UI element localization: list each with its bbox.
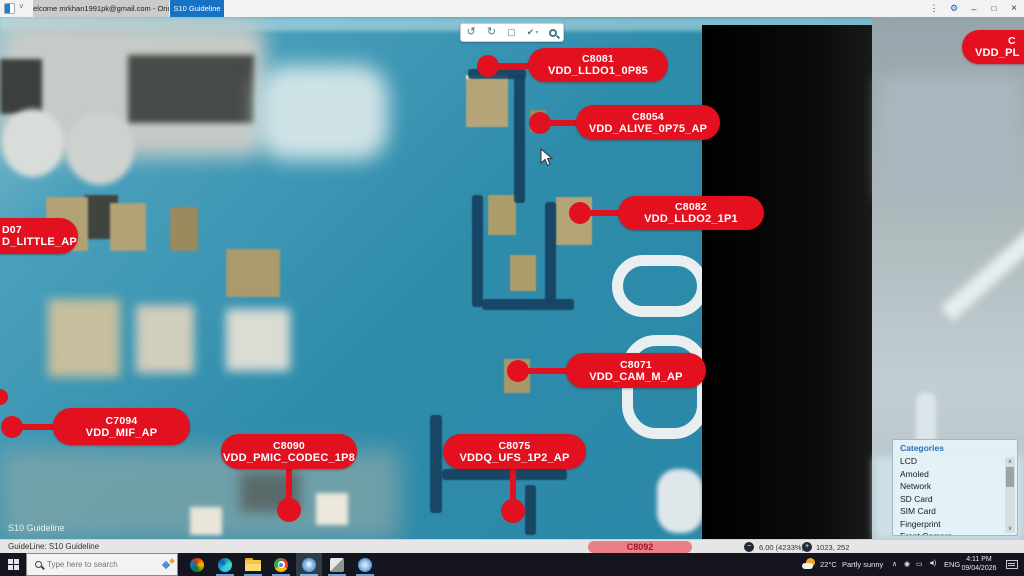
- callout-dot[interactable]: [501, 499, 525, 523]
- tray-circle-icon[interactable]: ◉: [904, 560, 910, 568]
- callout-rail: D_LITTLE_AP: [0, 236, 77, 248]
- callout-id: C7094: [53, 415, 190, 427]
- canvas-toolbar: ↺ ↻ ▢ ✔▾: [460, 23, 564, 42]
- categories-panel: Categories LCD Amoled Network SD Card SI…: [892, 439, 1018, 536]
- minimize-button[interactable]: –: [966, 0, 982, 17]
- taskbar-app-copilot[interactable]: [184, 553, 210, 576]
- tab-list-caret-icon[interactable]: ˅: [19, 2, 24, 11]
- taskbar: ✳ 22°C Partly sunny ∧ ◉ ▭ ◄) ENG 4:11 PM: [0, 553, 1024, 576]
- callout-rail: VDD_PMIC_CODEC_1P8: [221, 452, 357, 464]
- scroll-up-icon[interactable]: ∧: [1005, 457, 1015, 466]
- pcb-trace: [442, 469, 567, 480]
- taskbar-app-edge[interactable]: [212, 553, 238, 576]
- component-callout-c8082[interactable]: C8082 VDD_LLDO2_1P1: [618, 196, 764, 230]
- search-icon: [35, 561, 42, 568]
- draw-tool-caret-icon: ▾: [535, 30, 538, 36]
- scrollbar-thumb[interactable]: [1006, 467, 1014, 487]
- pcb-pad: [226, 309, 290, 371]
- pcb-trace: [525, 485, 536, 535]
- speaker-icon[interactable]: ◄): [928, 560, 935, 567]
- pcb-capacitor: [2, 109, 64, 177]
- pcb-canvas[interactable]: ↺ ↻ ▢ ✔▾ C8081 VDD_LLDO1_0P85 C8054 VDD_…: [0, 17, 1024, 539]
- category-item-front-camera[interactable]: Front Camera: [893, 530, 1017, 536]
- category-item-fingerprint[interactable]: Fingerprint: [893, 518, 1017, 531]
- pcb-trace: [430, 415, 442, 513]
- callout-id: C8082: [618, 201, 764, 213]
- tray-chevron-up-icon[interactable]: ∧: [892, 560, 897, 568]
- callout-dot[interactable]: [529, 112, 551, 134]
- folder-icon: [245, 558, 261, 571]
- component-callout-partial-left[interactable]: D07 D_LITTLE_AP: [0, 218, 78, 254]
- callout-dot-partial: [0, 389, 8, 405]
- component-callout-c7094[interactable]: C7094 VDD_MIF_AP: [53, 408, 190, 445]
- weather-temp[interactable]: 22°C: [820, 560, 837, 569]
- taskbar-app-chrome[interactable]: [268, 553, 294, 576]
- fit-screen-icon[interactable]: ▢: [507, 28, 516, 37]
- callout-rail: VDD_PL: [962, 47, 1020, 59]
- callout-id: C8075: [443, 440, 586, 452]
- tab-welcome[interactable]: Welcome mrkhan1991pk@gmail.com - Orion: [33, 0, 169, 17]
- pcb-right-blob: [880, 77, 1020, 197]
- callout-dot[interactable]: [569, 202, 591, 224]
- clock-time: 4:11 PM: [958, 556, 1000, 565]
- canvas-watermark: S10 Guideline: [8, 523, 65, 533]
- component-callout-partial-right[interactable]: C VDD_PL: [962, 30, 1024, 64]
- taskbar-app-blue[interactable]: [352, 553, 378, 576]
- callout-dot[interactable]: [277, 498, 301, 522]
- callout-id: C8081: [528, 53, 668, 65]
- rotate-right-icon[interactable]: ↻: [487, 27, 496, 38]
- callout-rail: VDD_MIF_AP: [53, 427, 190, 439]
- orion-app-icon[interactable]: [4, 3, 15, 14]
- taskbar-search[interactable]: [26, 553, 178, 576]
- snowflake-app-icon: ✳: [302, 558, 316, 572]
- pcb-pad: [170, 207, 198, 251]
- component-callout-c8071[interactable]: C8071 VDD_CAM_M_AP: [566, 353, 706, 388]
- pcb-pad: [136, 305, 194, 373]
- pcb-pad: [510, 255, 536, 291]
- screen: ˅ Welcome mrkhan1991pk@gmail.com - Orion…: [0, 0, 1024, 576]
- copilot-sparkle-icon: [169, 558, 175, 564]
- status-guideline-label: GuideLine: S10 Guideline: [8, 542, 99, 551]
- search-input[interactable]: [47, 560, 137, 569]
- callout-dot[interactable]: [1, 416, 23, 438]
- mouse-cursor: [540, 148, 553, 172]
- callout-rail: VDD_LLDO1_0P85: [528, 65, 668, 77]
- callout-id: C8090: [221, 440, 357, 452]
- categories-title: Categories: [893, 440, 1017, 455]
- callout-rail: VDD_LLDO2_1P1: [618, 213, 764, 225]
- pcb-pad-c8081: [466, 75, 508, 127]
- category-item-network[interactable]: Network: [893, 480, 1017, 493]
- blue-app-icon: [358, 558, 372, 572]
- weather-desc[interactable]: Partly sunny: [842, 560, 883, 569]
- clock[interactable]: 4:11 PM 09/04/2026: [958, 556, 1000, 573]
- component-callout-c8081[interactable]: C8081 VDD_LLDO1_0P85: [528, 48, 668, 82]
- taskbar-app-active[interactable]: ✳: [296, 553, 322, 576]
- callout-rail: VDD_ALIVE_0P75_AP: [576, 123, 720, 135]
- categories-scrollbar[interactable]: ∧ ∨: [1005, 457, 1015, 533]
- pcb-trace: [482, 299, 574, 310]
- windows-logo-icon: [8, 559, 19, 570]
- category-item-sd-card[interactable]: SD Card: [893, 493, 1017, 506]
- tab-s10-guideline[interactable]: S10 Guideline: [170, 0, 224, 17]
- pcb-pad: [48, 299, 120, 377]
- chrome-icon: [274, 558, 288, 572]
- category-item-amoled[interactable]: Amoled: [893, 468, 1017, 481]
- callout-rail: VDDQ_UFS_1P2_AP: [443, 452, 586, 464]
- pcb-dark-cap: [0, 59, 42, 114]
- magnifier-icon[interactable]: [549, 29, 557, 37]
- taskbar-app-gray[interactable]: [324, 553, 350, 576]
- pcb-capacitor: [66, 113, 134, 185]
- pcb-pad: [190, 507, 222, 535]
- category-item-sim-card[interactable]: SIM Card: [893, 505, 1017, 518]
- zoom-level-value: 6.00 (4233%): [759, 543, 804, 552]
- category-item-lcd[interactable]: LCD: [893, 455, 1017, 468]
- clock-date: 09/04/2026: [958, 565, 1000, 574]
- zoom-out-icon[interactable]: −: [744, 542, 754, 552]
- network-icon[interactable]: ▭: [916, 560, 923, 568]
- pcb-pad: [316, 493, 348, 525]
- pcb-pad: [110, 203, 146, 251]
- close-button[interactable]: ×: [1006, 0, 1022, 17]
- pcb-pad: [488, 195, 516, 235]
- gear-icon[interactable]: ⚙: [946, 0, 962, 17]
- menu-icon[interactable]: ⋮: [926, 0, 942, 17]
- pcb-trace: [514, 75, 525, 203]
- gray-app-icon: [330, 558, 344, 572]
- pcb-pad: [226, 249, 280, 297]
- callout-dot[interactable]: [477, 55, 499, 77]
- title-bar: ˅ Welcome mrkhan1991pk@gmail.com - Orion…: [0, 0, 1024, 17]
- component-callout-c8075[interactable]: C8075 VDDQ_UFS_1P2_AP: [443, 434, 586, 469]
- callout-id: C8071: [566, 359, 706, 371]
- pcb-trace: [472, 195, 483, 307]
- maximize-button[interactable]: □: [986, 0, 1002, 17]
- rotate-left-icon[interactable]: ↺: [467, 27, 476, 38]
- edge-icon: [218, 558, 232, 572]
- cursor-coordinates: 1023, 252: [816, 543, 849, 552]
- copilot-sparkle-icon: [162, 561, 170, 569]
- weather-icon: [802, 558, 816, 570]
- callout-id: C8054: [576, 111, 720, 123]
- pcb-light-blob: [258, 65, 388, 160]
- callout-id: C: [962, 35, 1016, 47]
- copilot-icon: [190, 558, 204, 572]
- pcb-dark-cap: [128, 55, 254, 123]
- zoom-in-icon[interactable]: +: [802, 542, 812, 552]
- pcb-trace: [545, 202, 556, 302]
- start-button[interactable]: [0, 553, 26, 576]
- callout-rail: VDD_CAM_M_AP: [566, 371, 706, 383]
- pcb-black-strip: [702, 25, 872, 539]
- status-bar: GuideLine: S10 Guideline C8092 − 6.00 (4…: [0, 539, 1024, 553]
- system-tray: 22°C Partly sunny ∧ ◉ ▭ ◄) ENG 4:11 PM 0…: [800, 553, 1024, 576]
- scroll-down-icon[interactable]: ∨: [1005, 524, 1015, 533]
- component-callout-c8090[interactable]: C8090 VDD_PMIC_CODEC_1P8: [221, 434, 357, 469]
- callout-leader: [510, 467, 516, 503]
- component-callout-c8092: C8092: [588, 541, 692, 553]
- pcb-white-trace: [657, 469, 703, 533]
- pcb-white-trace: [612, 255, 708, 317]
- notification-center-icon[interactable]: [1006, 560, 1018, 569]
- taskbar-app-file-explorer[interactable]: [240, 553, 266, 576]
- draw-tool-icon[interactable]: ✔▾: [527, 28, 539, 37]
- component-callout-c8054[interactable]: C8054 VDD_ALIVE_0P75_AP: [576, 105, 720, 140]
- callout-id: D07: [0, 224, 22, 236]
- callout-dot[interactable]: [507, 360, 529, 382]
